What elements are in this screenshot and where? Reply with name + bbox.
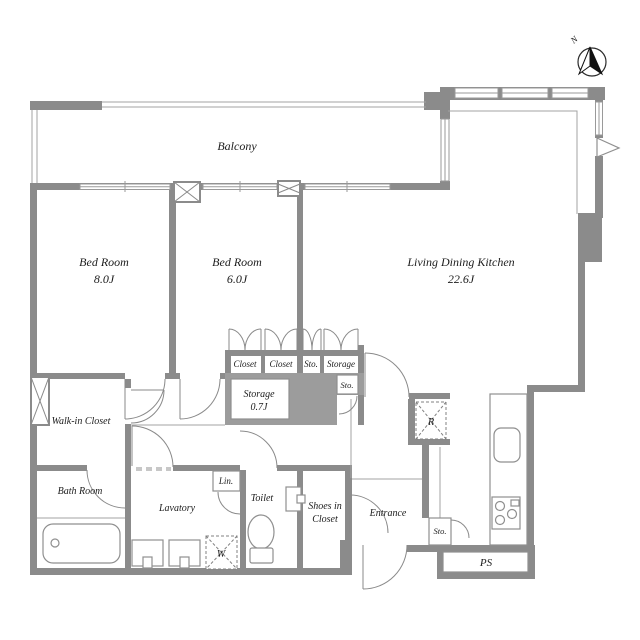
ldk-area: 22.6J	[448, 272, 475, 286]
bathtub-drain	[51, 539, 59, 547]
wall-wic-right-stub	[125, 379, 131, 388]
sto-mid-door-swing	[339, 396, 357, 414]
wall-closet-left	[225, 356, 231, 373]
wall-entrance-jog	[340, 540, 352, 575]
floor-plan-drawing: N Balcony Bed Room 8.0J Bed Room 6.0J Li…	[0, 0, 640, 640]
cooktop-grill	[511, 500, 519, 506]
toilet-label: Toilet	[251, 493, 274, 504]
wall-closet-top	[225, 350, 364, 356]
wall-bedroom-divider	[169, 190, 176, 379]
toilet-bowl	[248, 515, 274, 549]
wall-hall-bottom-1	[173, 465, 240, 471]
bedroom2-label: Bed Room	[212, 255, 262, 269]
storage-top-label: Storage	[327, 359, 355, 369]
linen-label: Lin.	[218, 476, 233, 486]
entrance-door-swing	[363, 545, 407, 589]
wall-bottom	[30, 568, 352, 575]
closet1-bifold-l	[229, 329, 245, 350]
wall-closet-div2	[320, 356, 324, 373]
storage-top-bifold-r	[341, 329, 358, 350]
toilet-cabinet-handle	[297, 495, 305, 503]
toilet-door-swing	[240, 431, 277, 468]
storage-top-bifold-l	[324, 329, 341, 350]
kitchen-sink	[494, 428, 520, 462]
cooktop-burner-2	[496, 516, 505, 525]
compass: N	[568, 33, 606, 76]
sto-entrance-door-swing	[451, 520, 469, 538]
wall-fridge-nook-bottom	[408, 439, 450, 445]
wall-closet-div1	[261, 356, 265, 373]
wall-lav-toilet-divider	[240, 470, 246, 571]
storage07-label: Storage	[243, 389, 275, 400]
wall-fridge-nook-top	[409, 393, 450, 399]
cooktop-burner-1	[496, 502, 505, 511]
entrance-label: Entrance	[369, 508, 407, 519]
ps-label: PS	[479, 557, 493, 569]
wall-kitchen-step	[527, 385, 585, 392]
bath-label: Bath Room	[58, 486, 103, 497]
toilet-tank	[250, 548, 273, 563]
wall-wic-bath-right	[125, 424, 131, 568]
refrigerator-label: R	[427, 417, 434, 428]
storage07-area: 0.7J	[251, 402, 269, 413]
wall-fridge-nook-left	[408, 399, 415, 445]
shoes-closet-label-2: Closet	[312, 514, 338, 525]
vanity-sink-2-faucet	[180, 557, 189, 568]
wall-ps-right	[528, 552, 535, 579]
sto-top-label: Sto.	[304, 359, 318, 369]
bedroom1-area: 8.0J	[94, 272, 115, 286]
wall-right-c	[595, 156, 603, 218]
bedroom1-label: Bed Room	[79, 255, 129, 269]
wall-toilet-sic-divider	[297, 465, 303, 571]
closet2-bifold-l	[265, 329, 281, 350]
linen-door-swing	[218, 492, 240, 514]
wall-right-lower	[578, 262, 585, 392]
sto-entrance-label: Sto.	[434, 526, 447, 536]
wall-kitchen-right	[527, 392, 534, 552]
closet2-bifold-r	[281, 329, 297, 350]
wall-right-block	[578, 213, 602, 262]
wall-bedroom2-ldk-divider	[297, 190, 303, 373]
closet2-label: Closet	[269, 359, 293, 369]
wall-bath-top	[30, 465, 87, 471]
lavatory-door-swing	[132, 426, 173, 467]
shoes-closet-label-1: Shoes in	[308, 501, 342, 512]
bedroom2-door-swing	[180, 379, 220, 419]
ldk-soffit-line	[448, 111, 577, 214]
closet1-label: Closet	[233, 359, 257, 369]
windows	[80, 88, 603, 192]
wic-label: Walk-in Closet	[52, 416, 111, 427]
lavatory-label: Lavatory	[158, 503, 196, 514]
wall-bedrooms-bottom-2	[165, 373, 180, 379]
floor-plan: N Balcony Bed Room 8.0J Bed Room 6.0J Li…	[0, 0, 640, 640]
wall-balcony-corner-left	[30, 101, 102, 110]
wall-hall-bottom-2	[277, 465, 352, 471]
sto-top-bifold-l	[303, 329, 312, 350]
balcony-label: Balcony	[217, 139, 257, 153]
wall-entrance-right	[422, 445, 429, 518]
ldk-side-door	[597, 138, 619, 157]
cooktop-burner-3	[508, 510, 517, 519]
closet1-bifold-r	[245, 329, 261, 350]
ldk-label: Living Dining Kitchen	[406, 255, 514, 269]
ldk-door-swing	[365, 353, 409, 397]
vanity-sink-1-faucet	[143, 557, 152, 568]
bedroom2-area: 6.0J	[227, 272, 248, 286]
sto-mid-label: Sto.	[341, 380, 354, 390]
compass-north-label: N	[568, 33, 581, 46]
wall-bottom-right	[407, 545, 535, 552]
wall-ps-bottom	[437, 572, 535, 579]
sto-top-bifold-r	[312, 329, 321, 350]
